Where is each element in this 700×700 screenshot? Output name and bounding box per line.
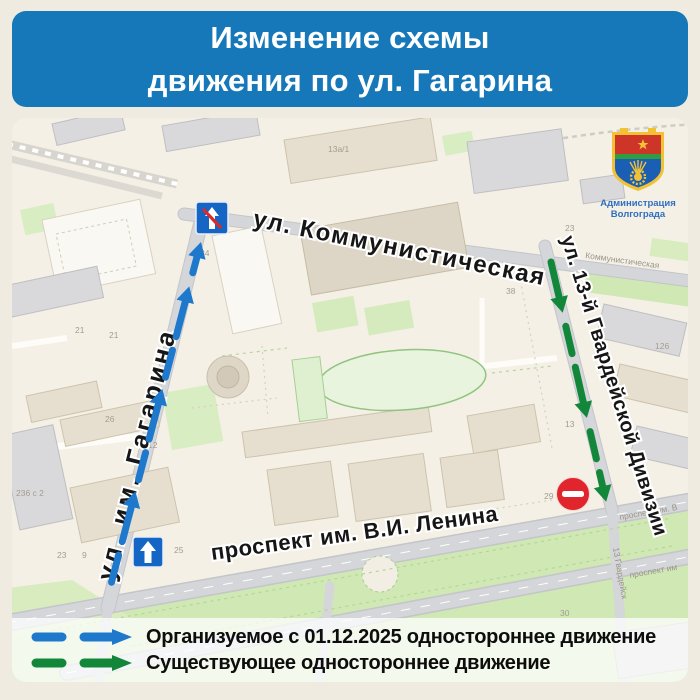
house-number: 30 [560, 608, 570, 618]
no-entry-sign [557, 478, 590, 511]
house-number: 13 [565, 419, 575, 429]
map: Коммунистическая проспект им. В проспект… [12, 118, 688, 682]
house-number: 21 [75, 325, 85, 335]
map-canvas: Коммунистическая проспект им. В проспект… [12, 118, 688, 682]
legend-label-existing-route: Существующее одностороннее движение [146, 652, 550, 675]
house-number: 236 с 2 [16, 488, 44, 498]
house-number: 13а/1 [328, 144, 350, 154]
new-route-arrow-icon [28, 628, 136, 646]
house-number: 26 [105, 414, 115, 424]
house-number: 38 [506, 286, 516, 296]
house-number: 23 [57, 550, 67, 560]
house-number: 21 [109, 330, 119, 340]
page-title-line1: Изменение схемы [210, 16, 489, 59]
house-number: 126 [655, 341, 669, 351]
house-number: 29 [544, 491, 554, 501]
house-number: 23 [565, 223, 575, 233]
legend-row-existing-route: Существующее одностороннее движение [28, 652, 688, 675]
house-number: 9 [82, 550, 87, 560]
oneway-end-sign [196, 202, 228, 234]
existing-route-arrow-icon [28, 654, 136, 672]
house-number: 34 [200, 248, 210, 258]
house-number: 25 [174, 545, 184, 555]
legend: Организуемое с 01.12.2025 одностороннее … [12, 618, 688, 682]
page-title: Изменение схемы движения по ул. Гагарина [12, 11, 688, 107]
page-title-line2: движения по ул. Гагарина [148, 59, 552, 102]
legend-row-new-route: Организуемое с 01.12.2025 одностороннее … [28, 626, 688, 649]
crest-caption-line1: Администрация [600, 198, 676, 209]
crest-caption-line2: Волгограда [611, 209, 666, 220]
legend-label-new-route: Организуемое с 01.12.2025 одностороннее … [146, 626, 656, 649]
oneway-sign [133, 537, 163, 567]
